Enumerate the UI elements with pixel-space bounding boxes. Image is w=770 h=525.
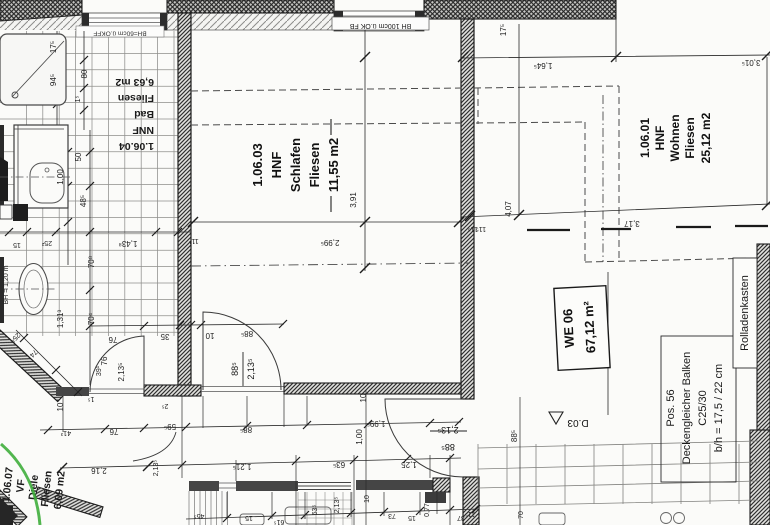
svg-text:67,12 m²: 67,12 m² — [581, 300, 599, 353]
svg-text:25,12 m2: 25,12 m2 — [699, 112, 713, 163]
svg-text:88⁵: 88⁵ — [510, 430, 519, 442]
svg-text:1,25: 1,25 — [401, 460, 417, 469]
svg-text:50: 50 — [74, 152, 83, 161]
svg-text:Wohnen: Wohnen — [668, 114, 682, 161]
svg-text:73: 73 — [388, 512, 396, 519]
svg-text:76: 76 — [100, 356, 109, 365]
svg-text:41³: 41³ — [60, 429, 71, 436]
svg-text:2,99⁵: 2,99⁵ — [321, 238, 340, 247]
svg-text:11⁵: 11⁵ — [465, 510, 475, 517]
svg-text:0,77: 0,77 — [424, 503, 431, 517]
svg-text:10: 10 — [359, 393, 368, 402]
svg-text:88⁵: 88⁵ — [241, 329, 253, 338]
svg-text:63⁵: 63⁵ — [312, 505, 319, 516]
svg-text:17⁵: 17⁵ — [499, 24, 508, 36]
svg-text:1,00: 1,00 — [56, 169, 65, 185]
svg-text:Rolladenkasten: Rolladenkasten — [739, 275, 751, 351]
svg-text:3,17: 3,17 — [624, 219, 640, 228]
svg-text:11¹: 11¹ — [189, 237, 199, 244]
svg-text:b/h = 17,5 / 22 cm: b/h = 17,5 / 22 cm — [713, 364, 725, 452]
svg-text:HNF: HNF — [269, 152, 284, 179]
svg-text:70⁴: 70⁴ — [87, 312, 96, 325]
svg-text:88⁵: 88⁵ — [441, 442, 455, 452]
svg-text:Pos. 56: Pos. 56 — [665, 389, 677, 426]
svg-text:25²: 25² — [41, 239, 52, 246]
svg-text:15: 15 — [245, 514, 253, 521]
svg-text:1.06.04: 1.06.04 — [119, 140, 154, 152]
svg-text:2,16: 2,16 — [91, 466, 107, 475]
svg-text:94⁵: 94⁵ — [49, 74, 58, 86]
svg-text:59⁵: 59⁵ — [164, 422, 176, 431]
svg-text:Bad: Bad — [134, 108, 154, 120]
svg-text:39¹: 39¹ — [96, 365, 103, 376]
svg-text:80: 80 — [80, 69, 89, 78]
svg-text:10: 10 — [56, 402, 65, 411]
svg-text:61⁵: 61⁵ — [274, 518, 285, 525]
svg-text:C25/30: C25/30 — [697, 390, 709, 425]
svg-text:35: 35 — [160, 332, 169, 341]
svg-text:D.03: D.03 — [567, 417, 589, 428]
svg-text:Fliesen: Fliesen — [307, 143, 322, 188]
svg-text:1,00: 1,00 — [355, 429, 364, 445]
svg-text:1⁵: 1⁵ — [88, 395, 95, 402]
svg-text:NNF: NNF — [132, 124, 154, 136]
svg-text:BH=60cm ü.OKFF: BH=60cm ü.OKFF — [93, 30, 146, 37]
svg-text:1,43⁸: 1,43⁸ — [119, 239, 138, 248]
svg-text:37: 37 — [457, 514, 465, 521]
svg-text:3,01⁵: 3,01⁵ — [742, 58, 761, 67]
svg-text:1,31³: 1,31³ — [56, 310, 65, 329]
svg-text:76: 76 — [109, 427, 118, 436]
svg-text:VF: VF — [14, 478, 27, 493]
svg-text:1,64⁵: 1,64⁵ — [534, 61, 553, 70]
svg-text:1,99⁵: 1,99⁵ — [367, 419, 386, 428]
svg-text:2,13⁵: 2,13⁵ — [153, 460, 160, 477]
svg-text:Deckengleicher Balken: Deckengleicher Balken — [681, 352, 693, 465]
svg-text:88⁵: 88⁵ — [230, 362, 240, 376]
svg-text:88⁵: 88⁵ — [240, 425, 252, 434]
svg-text:1.06.03: 1.06.03 — [250, 143, 265, 186]
svg-text:15: 15 — [13, 241, 21, 248]
svg-text:1,21⁵: 1,21⁵ — [233, 462, 252, 471]
svg-text:1⁵: 1⁵ — [75, 96, 82, 103]
svg-text:6,63 m2: 6,63 m2 — [115, 76, 154, 88]
svg-text:HNF: HNF — [653, 126, 667, 151]
svg-text:10: 10 — [205, 331, 214, 340]
svg-text:70⁸: 70⁸ — [87, 256, 96, 268]
svg-text:Fliesen: Fliesen — [683, 117, 697, 158]
svg-text:63⁵: 63⁵ — [333, 460, 345, 469]
svg-text:3,91: 3,91 — [349, 192, 358, 208]
svg-text:WE 06: WE 06 — [560, 308, 577, 348]
svg-text:76: 76 — [108, 335, 117, 344]
svg-text:4,07: 4,07 — [504, 201, 513, 217]
svg-text:2,13⁵: 2,13⁵ — [117, 363, 126, 382]
svg-text:48⁵: 48⁵ — [79, 195, 88, 207]
svg-text:70: 70 — [518, 511, 525, 519]
svg-text:Fliesen: Fliesen — [118, 92, 154, 104]
svg-text:1.06.01: 1.06.01 — [638, 118, 652, 158]
svg-text:45⁵: 45⁵ — [194, 512, 205, 519]
svg-text:17⁵: 17⁵ — [49, 41, 58, 53]
svg-text:10: 10 — [364, 495, 371, 503]
svg-text:BH = 1,20 m: BH = 1,20 m — [3, 265, 10, 304]
svg-text:2,13⁵: 2,13⁵ — [334, 497, 341, 514]
svg-text:BH 100cm ü.OK FB: BH 100cm ü.OK FB — [349, 22, 411, 29]
svg-text:15: 15 — [408, 514, 416, 521]
svg-text:11⁵: 11⁵ — [476, 225, 486, 232]
svg-text:2,13⁵: 2,13⁵ — [246, 358, 256, 380]
svg-text:11,55 m2: 11,55 m2 — [326, 138, 341, 192]
svg-text:Schlafen: Schlafen — [288, 138, 303, 192]
svg-text:2⁵: 2⁵ — [162, 402, 169, 409]
svg-text:2,13⁵: 2,13⁵ — [437, 425, 459, 435]
